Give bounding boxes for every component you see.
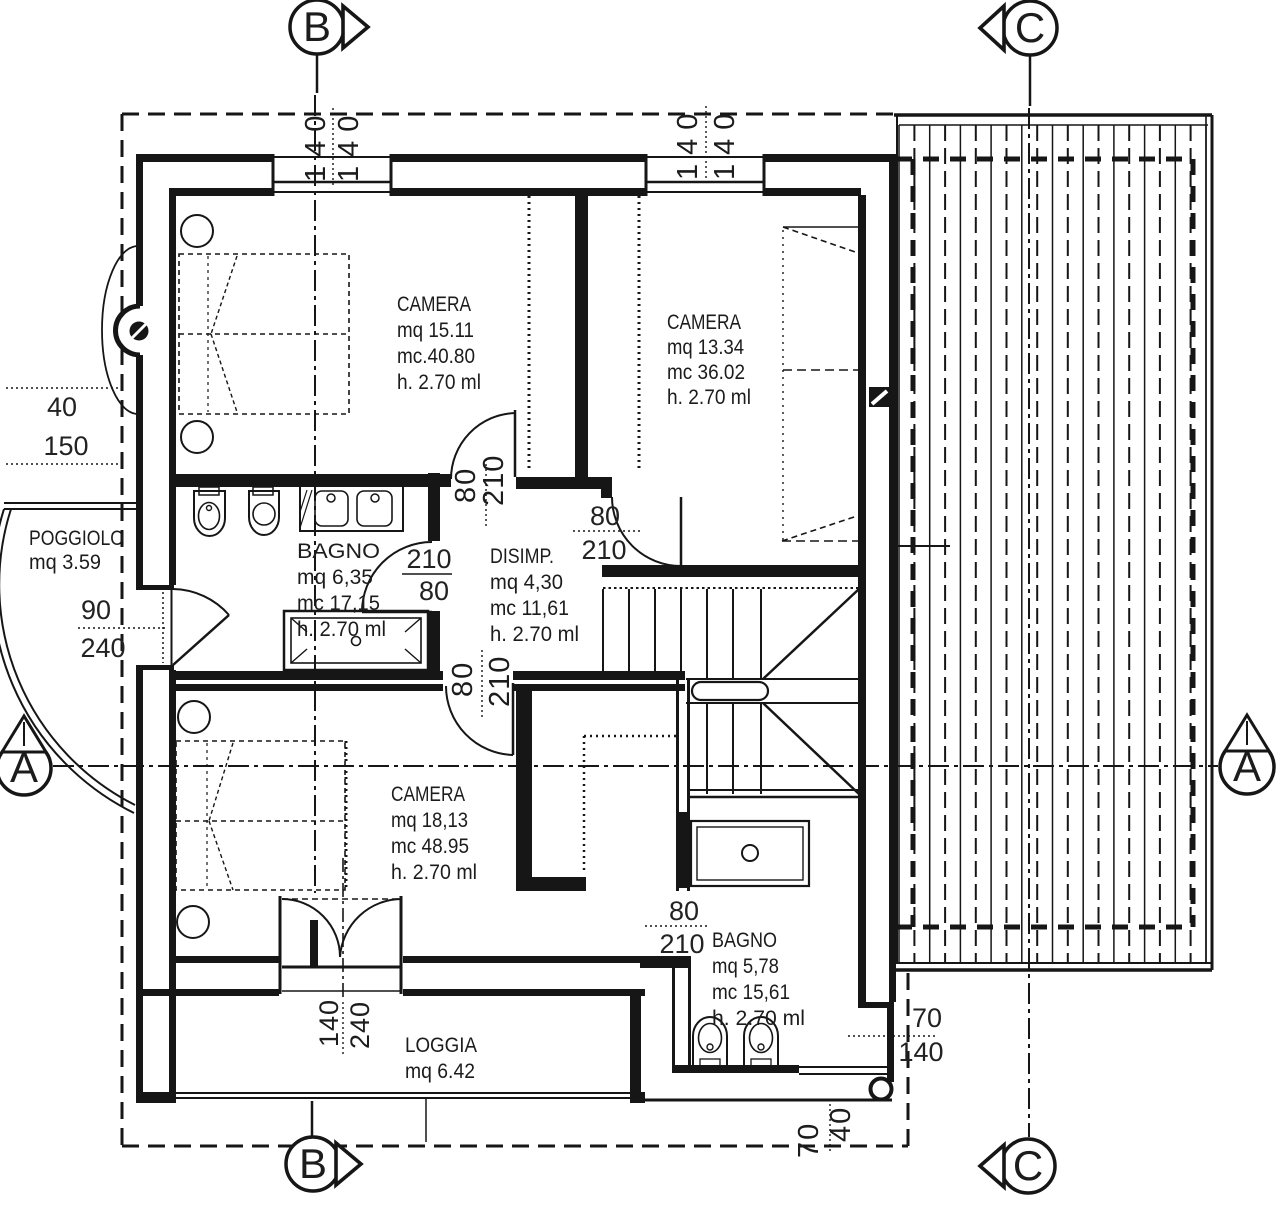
svg-text:BAGNO: BAGNO	[297, 540, 380, 563]
svg-text:150: 150	[43, 431, 88, 461]
svg-text:40: 40	[825, 1106, 857, 1142]
svg-text:h. 2.70 ml: h. 2.70 ml	[391, 861, 477, 884]
svg-text:210: 210	[581, 535, 626, 565]
svg-text:mq 15.11: mq 15.11	[397, 319, 474, 342]
svg-text:240: 240	[345, 1001, 375, 1049]
svg-text:h. 2.70 ml: h. 2.70 ml	[490, 623, 579, 646]
svg-text:h. 2.70 ml: h. 2.70 ml	[712, 1007, 805, 1030]
svg-text:DISIMP.: DISIMP.	[490, 545, 554, 568]
svg-text:mq 18,13: mq 18,13	[391, 809, 468, 832]
svg-text:210: 210	[406, 544, 451, 574]
svg-text:h. 2.70 ml: h. 2.70 ml	[297, 618, 386, 641]
svg-text:mq 6,35: mq 6,35	[297, 566, 373, 589]
svg-text:210: 210	[659, 929, 704, 959]
svg-text:mc 11,61: mc 11,61	[490, 597, 569, 620]
svg-text:CAMERA: CAMERA	[391, 783, 465, 806]
svg-text:mq 3.59: mq 3.59	[29, 551, 101, 574]
svg-text:140: 140	[314, 999, 344, 1047]
svg-text:mc 17,15: mc 17,15	[297, 592, 380, 615]
svg-text:mq 5,78: mq 5,78	[712, 955, 779, 978]
svg-text:140: 140	[672, 105, 704, 180]
svg-text:mc 36.02: mc 36.02	[667, 361, 745, 384]
svg-text:140: 140	[709, 105, 741, 180]
svg-text:140: 140	[898, 1037, 943, 1067]
svg-text:80: 80	[419, 576, 449, 606]
svg-text:LOGGIA: LOGGIA	[405, 1034, 477, 1057]
svg-text:A: A	[1233, 743, 1261, 790]
svg-text:B: B	[303, 3, 331, 50]
svg-text:h. 2.70 ml: h. 2.70 ml	[397, 371, 481, 394]
svg-text:70: 70	[793, 1122, 825, 1158]
svg-text:210: 210	[484, 656, 516, 707]
svg-text:140: 140	[333, 107, 365, 182]
svg-text:A: A	[10, 744, 38, 791]
svg-text:CAMERA: CAMERA	[667, 311, 741, 334]
svg-text:B: B	[299, 1140, 327, 1187]
svg-text:CAMERA: CAMERA	[397, 293, 471, 316]
svg-text:POGGIOLO: POGGIOLO	[29, 527, 124, 550]
svg-text:mq 6.42: mq 6.42	[405, 1060, 475, 1083]
svg-text:mc 48.95: mc 48.95	[391, 835, 469, 858]
svg-text:BAGNO: BAGNO	[712, 929, 777, 952]
svg-text:mc 15,61: mc 15,61	[712, 981, 790, 1004]
svg-text:40: 40	[47, 392, 77, 422]
svg-text:h. 2.70 ml: h. 2.70 ml	[667, 386, 751, 409]
svg-text:mq 4,30: mq 4,30	[490, 571, 563, 594]
svg-text:80: 80	[590, 501, 620, 531]
svg-text:mc.40.80: mc.40.80	[397, 345, 475, 368]
svg-text:C: C	[1013, 1142, 1043, 1189]
svg-text:210: 210	[478, 455, 510, 506]
svg-text:C: C	[1015, 4, 1045, 51]
svg-text:240: 240	[80, 633, 125, 663]
svg-text:mq 13.34: mq 13.34	[667, 336, 744, 359]
svg-text:80: 80	[447, 661, 479, 697]
svg-text:140: 140	[300, 107, 332, 182]
svg-text:80: 80	[669, 896, 699, 926]
svg-text:90: 90	[81, 595, 111, 625]
svg-text:70: 70	[912, 1003, 942, 1033]
